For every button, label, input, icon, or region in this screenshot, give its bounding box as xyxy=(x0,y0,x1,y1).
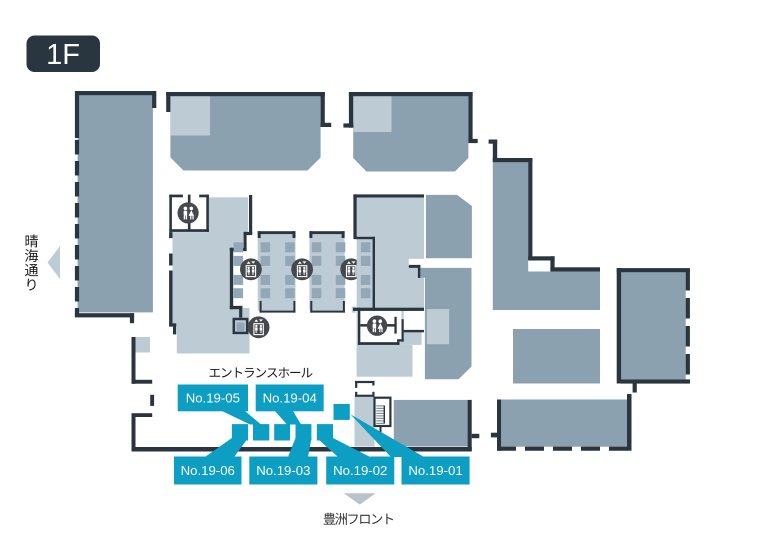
svg-text:No.19-05: No.19-05 xyxy=(186,391,240,406)
svg-text:1F: 1F xyxy=(46,39,80,71)
svg-text:No.19-03: No.19-03 xyxy=(256,463,310,478)
svg-text:No.19-02: No.19-02 xyxy=(333,463,387,478)
svg-text:No.19-01: No.19-01 xyxy=(408,463,462,478)
svg-text:No.19-06: No.19-06 xyxy=(181,463,235,478)
svg-text:No.19-04: No.19-04 xyxy=(263,391,317,406)
